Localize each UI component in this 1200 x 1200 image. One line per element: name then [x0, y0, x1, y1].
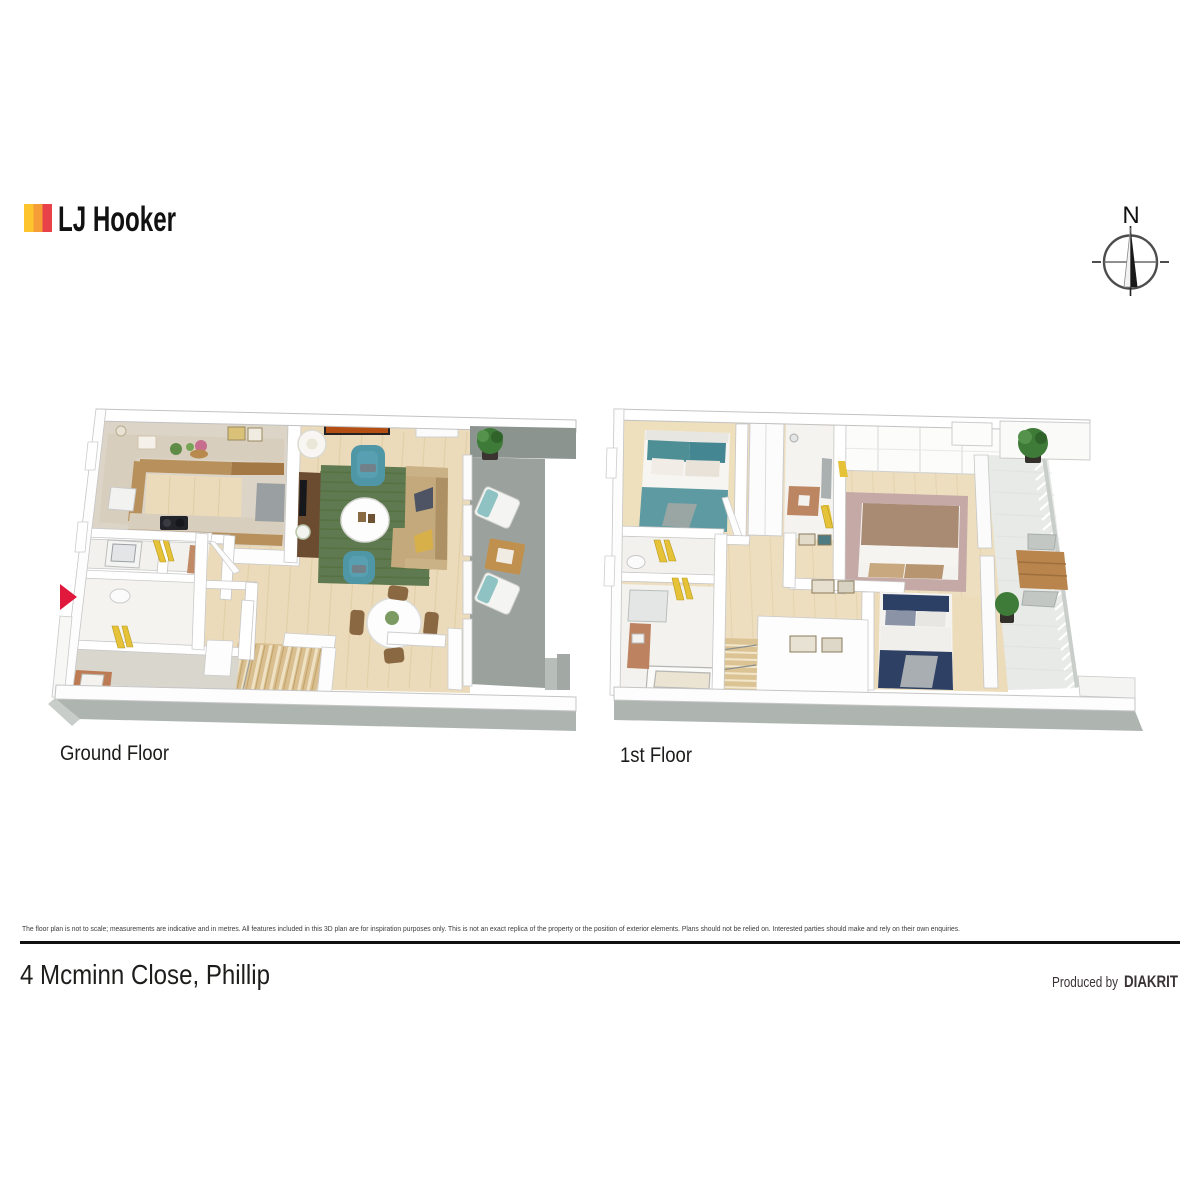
svg-text:LJ Hooker: LJ Hooker [58, 200, 176, 239]
svg-text:The floor plan is not to scale: The floor plan is not to scale; measurem… [22, 924, 960, 933]
svg-text:Ground Floor: Ground Floor [60, 742, 169, 765]
svg-text:DIAKRIT: DIAKRIT [1124, 973, 1178, 991]
svg-text:Produced by: Produced by [1052, 974, 1118, 991]
svg-text:4 Mcminn Close, Phillip: 4 Mcminn Close, Phillip [20, 959, 270, 990]
svg-text:1st Floor: 1st Floor [620, 744, 692, 767]
svg-text:N: N [1122, 202, 1139, 229]
